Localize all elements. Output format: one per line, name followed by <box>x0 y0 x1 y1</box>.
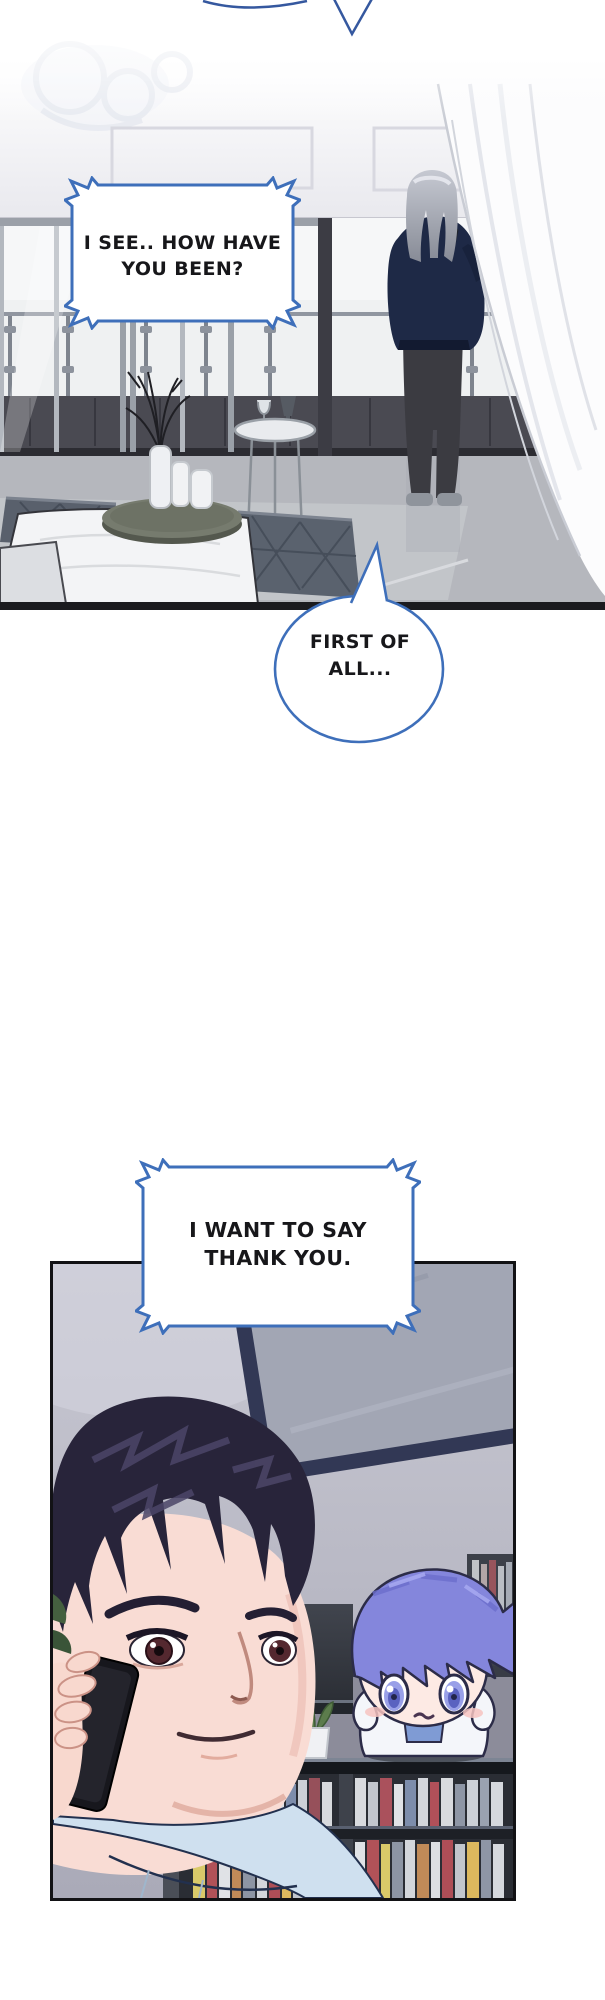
webtoon-page: I SEE.. HOW HAVE YOU BEEN? FIRST OF ALL.… <box>0 0 605 2000</box>
speech-line: THANK YOU. <box>135 1244 421 1272</box>
bubble-tail <box>351 545 387 603</box>
speech-line: ALL... <box>265 656 455 683</box>
speech-bubble-round: FIRST OF ALL... <box>265 533 455 748</box>
closeup-panel-art <box>53 1264 513 1898</box>
speech-bubble-shout-1: I SEE.. HOW HAVE YOU BEEN? <box>64 176 301 330</box>
jar <box>191 470 212 508</box>
jar <box>172 462 189 506</box>
speech-text: I SEE.. HOW HAVE YOU BEEN? <box>64 230 301 282</box>
chibi-character <box>352 1569 513 1763</box>
closeup-panel <box>50 1261 516 1901</box>
vase <box>150 446 171 508</box>
speech-bubble-shout-2: I WANT TO SAY THANK YOU. <box>135 1158 421 1335</box>
speech-text: I WANT TO SAY THANK YOU. <box>135 1216 421 1272</box>
speech-text: FIRST OF ALL... <box>265 629 455 683</box>
speech-line: YOU BEEN? <box>64 256 301 282</box>
speech-line: I WANT TO SAY <box>135 1216 421 1244</box>
speech-line: FIRST OF <box>265 629 455 656</box>
armrest <box>0 542 66 604</box>
speech-line: I SEE.. HOW HAVE <box>64 230 301 256</box>
